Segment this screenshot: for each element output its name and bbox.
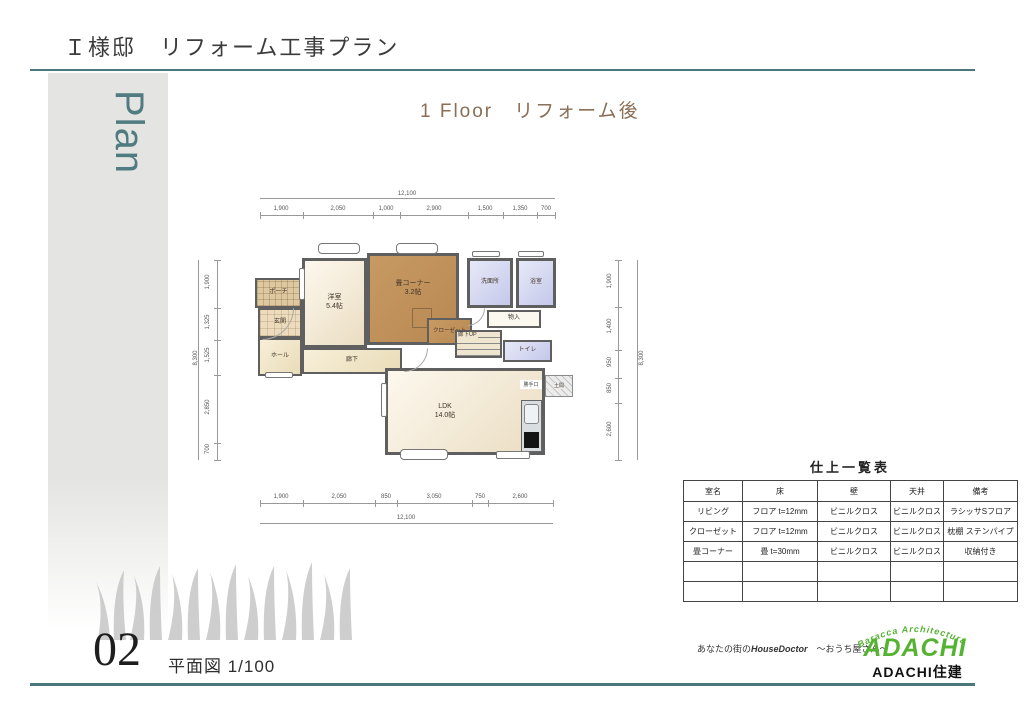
- dim-seg: 700: [205, 431, 211, 467]
- window: [299, 268, 305, 300]
- page-title: Ｉ様邸 リフォーム工事プラン: [64, 30, 399, 62]
- sidebar-plan-label: Plan: [108, 90, 150, 174]
- room-doma: 土間: [545, 375, 573, 397]
- room-label: トイレ: [518, 347, 536, 355]
- dim-seg: 850: [366, 494, 406, 500]
- dim-seg: 850: [607, 370, 613, 406]
- window: [496, 451, 530, 459]
- room-label: 浴室: [530, 279, 542, 287]
- col-header: 床: [743, 481, 818, 502]
- room-toilet: トイレ: [503, 340, 552, 362]
- room-label: 畳コーナー 3.2帖: [396, 280, 431, 298]
- logo-name-text: ADACHI: [862, 634, 966, 662]
- cell: [891, 582, 944, 602]
- plan-sheet: Ｉ様邸 リフォーム工事プラン Plan 1 Floor リフォーム後 12,10…: [0, 0, 1024, 724]
- room-label: ホール: [271, 353, 289, 361]
- dim-seg: 1,500: [465, 206, 505, 212]
- tagline-prefix: あなたの街の: [697, 644, 751, 654]
- dim-ticks: [260, 212, 261, 219]
- floor-subtitle: 1 Floor リフォーム後: [420, 96, 640, 123]
- company-logo: Baracca Architectura ADACHI: [850, 614, 980, 664]
- room-label: 物入: [508, 315, 520, 323]
- dim-seg: 2,050: [319, 494, 359, 500]
- dim-seg: 1,525: [205, 337, 211, 373]
- stairs: 廊下UP: [455, 330, 502, 358]
- dim-line: [618, 260, 619, 460]
- room-label: 洋室 5.4帖: [326, 294, 343, 312]
- dim-seg: 1,900: [261, 494, 301, 500]
- dim-total-bottom: 12,100: [376, 515, 436, 521]
- finish-table: 室名 床 壁 天井 備考 リビング フロア t=12mm ビニルクロス ビニルク…: [683, 480, 1018, 602]
- table-row: リビング フロア t=12mm ビニルクロス ビニルクロス ラシッサSフロア: [684, 502, 1018, 522]
- dim-seg: 2,850: [205, 389, 211, 425]
- dim-line: [260, 523, 553, 524]
- cell: ビニルクロス: [891, 522, 944, 542]
- dim-seg: 2,050: [318, 206, 358, 212]
- cell: 枕棚 ステンパイプ: [944, 522, 1018, 542]
- finish-table-title: 仕上一覧表: [683, 457, 1017, 476]
- cell: [818, 562, 891, 582]
- bay-window: [318, 243, 360, 254]
- door-arc: [467, 308, 485, 326]
- table-row: 畳コーナー 畳 t=30mm ビニルクロス ビニルクロス 収納付き: [684, 542, 1018, 562]
- dim-seg: 750: [460, 494, 500, 500]
- dim-total-top: 12,100: [377, 191, 437, 197]
- cell: ビニルクロス: [818, 502, 891, 522]
- cell: [818, 582, 891, 602]
- cell: ビニルクロス: [818, 522, 891, 542]
- room-storage: 物入: [487, 310, 541, 328]
- dim-seg: 1,900: [261, 206, 301, 212]
- cell: フロア t=12mm: [743, 502, 818, 522]
- col-header: 天井: [891, 481, 944, 502]
- cell: リビング: [684, 502, 743, 522]
- col-header: 備考: [944, 481, 1018, 502]
- cell: 畳 t=30mm: [743, 542, 818, 562]
- room-washroom: 洗面所: [467, 258, 513, 308]
- room-western: 洋室 5.4帖: [302, 258, 367, 348]
- table-row: [684, 562, 1018, 582]
- header-divider: [30, 69, 975, 71]
- dim-seg: 1,900: [205, 264, 211, 300]
- dim-line: [260, 215, 555, 216]
- cell: ビニルクロス: [818, 542, 891, 562]
- company-name: ADACHI住建: [860, 662, 975, 682]
- dim-seg: 1,325: [205, 304, 211, 340]
- page-caption: 平面図 1/100: [168, 652, 275, 677]
- dim-seg: 1,900: [607, 263, 613, 299]
- floor-plan-drawing: 12,100 1,900 2,050 1,000 2,900 1,500 1,3…: [190, 190, 650, 540]
- cell: フロア t=12mm: [743, 522, 818, 542]
- dim-seg: 2,600: [500, 494, 540, 500]
- cell: ビニルクロス: [891, 502, 944, 522]
- dim-line: [217, 260, 218, 460]
- page-number: 02: [93, 622, 141, 677]
- room-bath: 浴室: [516, 258, 556, 308]
- dim-line: [637, 260, 638, 460]
- cell: [944, 562, 1018, 582]
- dim-seg: 1,000: [366, 206, 406, 212]
- dim-seg: 700: [526, 206, 566, 212]
- cell: ラシッサSフロア: [944, 502, 1018, 522]
- tagline-brand: HouseDoctor: [751, 644, 808, 654]
- kitchen-sink: [524, 404, 539, 424]
- cell: クローゼット: [684, 522, 743, 542]
- dim-seg: 2,600: [607, 411, 613, 447]
- bay-window: [400, 449, 448, 460]
- footer-divider: [30, 683, 975, 686]
- window: [518, 251, 544, 257]
- room-porch: ポーチ: [255, 278, 302, 308]
- room-label: 土間: [554, 383, 564, 389]
- room-label: LDK 14.0帖: [435, 403, 456, 421]
- window: [381, 383, 387, 417]
- dim-seg: 2,900: [414, 206, 454, 212]
- cell: 畳コーナー: [684, 542, 743, 562]
- cell: [743, 562, 818, 582]
- col-header: 壁: [818, 481, 891, 502]
- table-row: [684, 582, 1018, 602]
- room-label: 洗面所: [481, 279, 499, 287]
- cell: 収納付き: [944, 542, 1018, 562]
- dim-seg: 3,050: [414, 494, 454, 500]
- cell: [743, 582, 818, 602]
- cell: [891, 562, 944, 582]
- kitchen-stove: [524, 432, 539, 448]
- dim-seg: 1,400: [607, 308, 613, 344]
- dim-ticks: [615, 260, 622, 261]
- dim-total-left: 8,300: [193, 338, 199, 378]
- cell: [944, 582, 1018, 602]
- dim-line: [260, 198, 555, 199]
- dim-ticks: [260, 500, 261, 507]
- dim-line: [260, 503, 553, 504]
- dim-total-right: 8,300: [639, 338, 645, 378]
- dim-ticks: [214, 260, 221, 261]
- cell: [684, 562, 743, 582]
- cell: ビニルクロス: [891, 542, 944, 562]
- window: [472, 251, 500, 257]
- room-hall: ホール: [258, 338, 302, 376]
- col-header: 室名: [684, 481, 743, 502]
- cell: [684, 582, 743, 602]
- back-door-label: 勝手口: [520, 380, 542, 389]
- room-label: 廊下: [346, 357, 358, 365]
- table-row: クローゼット フロア t=12mm ビニルクロス ビニルクロス 枕棚 ステンパイ…: [684, 522, 1018, 542]
- room-label: ポーチ: [269, 289, 287, 297]
- room-label: 勝手口: [523, 381, 538, 388]
- window: [265, 372, 293, 378]
- finish-table-header-row: 室名 床 壁 天井 備考: [684, 481, 1018, 502]
- bay-window: [396, 243, 438, 254]
- room-label: 廊下UP: [457, 332, 478, 339]
